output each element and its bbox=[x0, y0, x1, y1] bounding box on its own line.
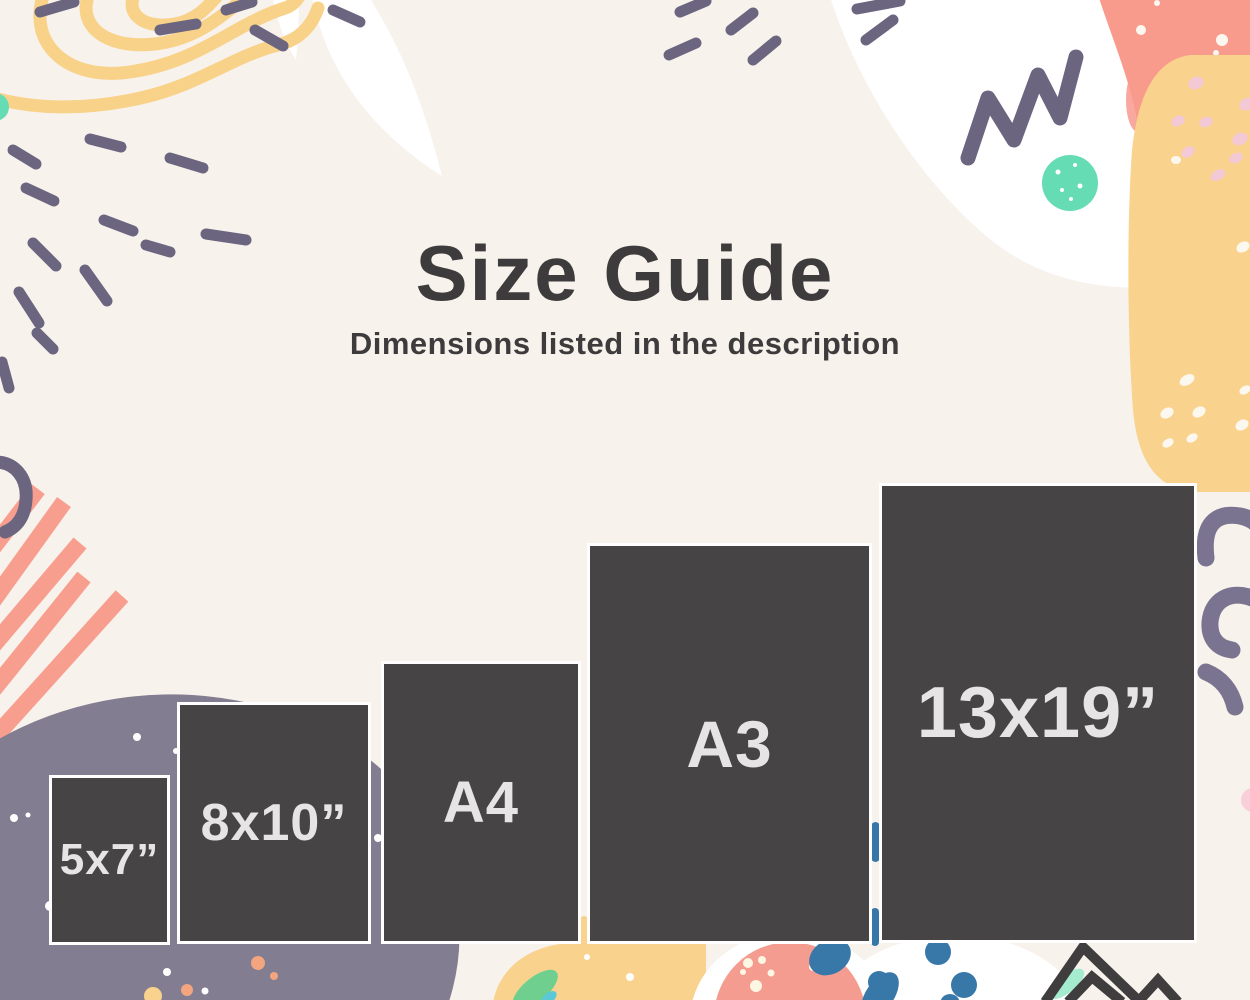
size-label: A4 bbox=[443, 769, 519, 836]
size-label: 13x19” bbox=[917, 672, 1159, 754]
size-rect-5x7: 5x7” bbox=[49, 775, 170, 945]
size-label: 5x7” bbox=[60, 835, 159, 885]
size-rect-8x10: 8x10” bbox=[177, 702, 371, 944]
size-label: A3 bbox=[686, 706, 772, 782]
page-title: Size Guide bbox=[0, 228, 1250, 319]
yellow-squiggle-decoration bbox=[0, 0, 318, 107]
page-subtitle: Dimensions listed in the description bbox=[0, 326, 1250, 362]
teal-circle-decoration bbox=[1042, 155, 1098, 211]
purple-hooks-decoration bbox=[1205, 515, 1250, 707]
pink-dot-right-edge bbox=[1241, 788, 1250, 812]
zigzag-decoration bbox=[1043, 947, 1178, 1000]
size-label: 8x10” bbox=[201, 793, 348, 853]
size-rect-a3: A3 bbox=[587, 543, 872, 944]
size-rect-a4: A4 bbox=[381, 661, 581, 944]
size-rect-13x19: 13x19” bbox=[879, 483, 1197, 943]
